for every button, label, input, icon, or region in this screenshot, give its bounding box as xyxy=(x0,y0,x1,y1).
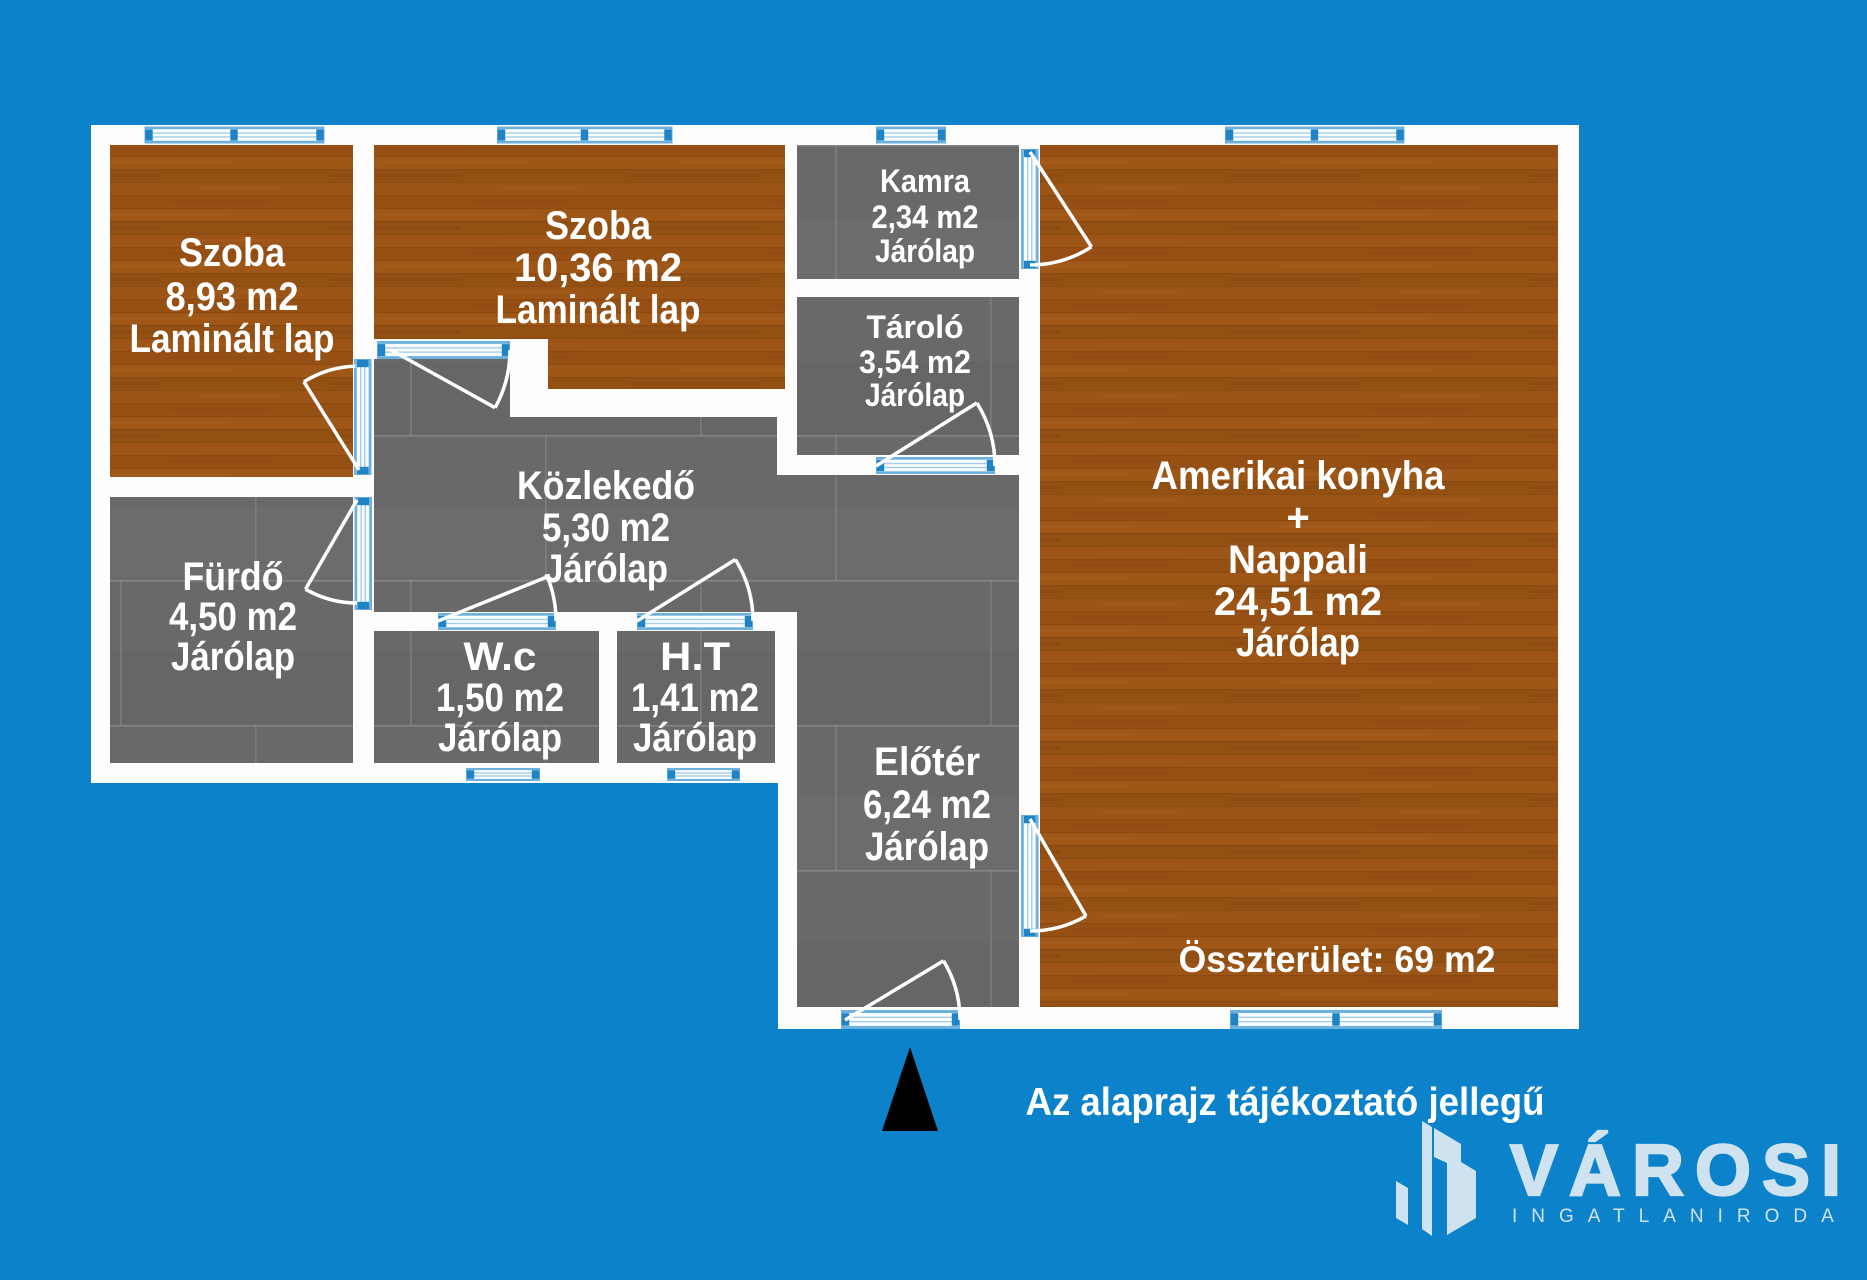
svg-text:Nappali: Nappali xyxy=(1228,538,1368,582)
svg-text:Járólap: Járólap xyxy=(1236,621,1360,665)
svg-text:Járólap: Járólap xyxy=(633,716,757,760)
svg-text:Szoba: Szoba xyxy=(179,231,286,275)
svg-text:Tároló: Tároló xyxy=(867,309,964,345)
svg-text:Közlekedő: Közlekedő xyxy=(517,464,695,508)
svg-text:VÁROSI: VÁROSI xyxy=(1510,1131,1852,1211)
svg-text:5,30 m2: 5,30 m2 xyxy=(542,506,670,550)
svg-text:Laminált lap: Laminált lap xyxy=(496,288,701,332)
svg-text:Összterület: 69 m2: Összterület: 69 m2 xyxy=(1179,939,1496,980)
svg-text:Előtér: Előtér xyxy=(874,740,980,784)
svg-text:Fürdő: Fürdő xyxy=(183,555,284,599)
svg-text:Szoba: Szoba xyxy=(545,204,652,248)
svg-text:W.c: W.c xyxy=(464,635,537,679)
svg-text:Járólap: Járólap xyxy=(438,716,562,760)
svg-text:6,24 m2: 6,24 m2 xyxy=(863,783,991,827)
svg-text:INGATLANIRODA: INGATLANIRODA xyxy=(1512,1206,1848,1227)
svg-text:+: + xyxy=(1286,496,1309,540)
svg-text:Járólap: Járólap xyxy=(865,377,965,413)
svg-text:Amerikai konyha: Amerikai konyha xyxy=(1152,454,1446,498)
svg-text:H.T: H.T xyxy=(660,635,730,679)
svg-text:24,51 m2: 24,51 m2 xyxy=(1214,580,1382,624)
svg-text:Járólap: Járólap xyxy=(865,825,989,869)
svg-text:1,50 m2: 1,50 m2 xyxy=(436,676,564,720)
svg-text:2,34 m2: 2,34 m2 xyxy=(872,199,979,235)
svg-text:Kamra: Kamra xyxy=(880,163,970,199)
svg-text:Az alaprajz tájékoztató jelleg: Az alaprajz tájékoztató jellegű xyxy=(1026,1081,1545,1124)
svg-text:Járólap: Járólap xyxy=(544,547,668,591)
svg-text:3,54 m2: 3,54 m2 xyxy=(859,344,971,380)
svg-text:10,36 m2: 10,36 m2 xyxy=(514,246,682,290)
svg-text:4,50 m2: 4,50 m2 xyxy=(169,595,297,639)
svg-text:Járólap: Járólap xyxy=(171,635,295,679)
svg-text:Járólap: Járólap xyxy=(875,233,975,269)
svg-text:Laminált lap: Laminált lap xyxy=(130,317,335,361)
svg-text:1,41 m2: 1,41 m2 xyxy=(631,676,759,720)
svg-text:8,93 m2: 8,93 m2 xyxy=(166,275,299,319)
